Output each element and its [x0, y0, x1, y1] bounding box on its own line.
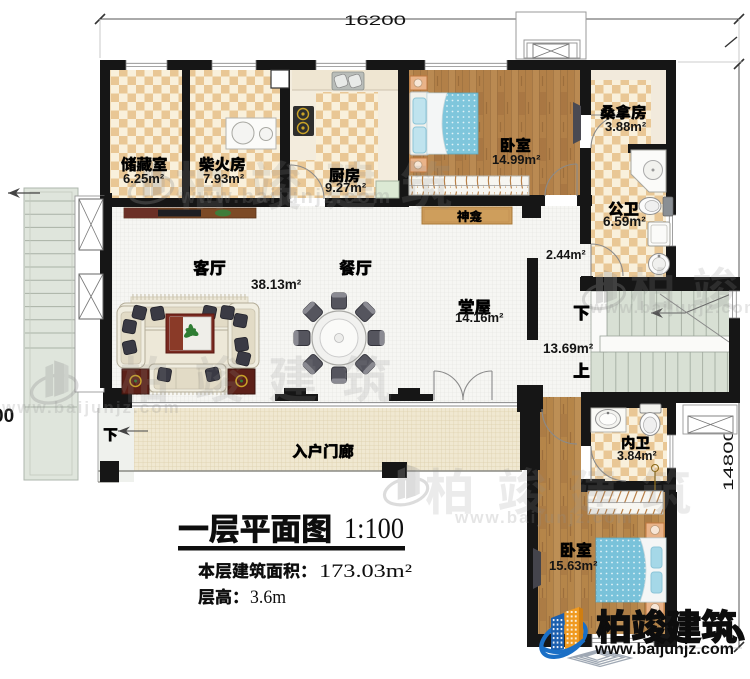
svg-text:www.baijunjz.com: www.baijunjz.com: [454, 508, 634, 527]
svg-text:14.16m²: 14.16m²: [455, 310, 504, 325]
svg-text:www.baijunjz.com: www.baijunjz.com: [1, 398, 181, 417]
svg-text:15.63m²: 15.63m²: [549, 558, 598, 573]
svg-text:173.03m²: 173.03m²: [319, 561, 412, 582]
svg-text:14800: 14800: [721, 429, 736, 491]
svg-text:13.69m²: 13.69m²: [543, 341, 594, 356]
svg-text:3.88m²: 3.88m²: [605, 119, 647, 134]
svg-text:www.baijunjz.com: www.baijunjz.com: [589, 298, 750, 317]
svg-text:3.84m²: 3.84m²: [617, 449, 657, 463]
svg-text:16200: 16200: [344, 13, 406, 28]
svg-text:14.99m²: 14.99m²: [492, 152, 541, 167]
svg-text:3.6m: 3.6m: [250, 587, 286, 608]
svg-text:9.27m²: 9.27m²: [325, 180, 367, 195]
svg-text:7.93m²: 7.93m²: [203, 171, 245, 186]
svg-text:www.baijunjz.com: www.baijunjz.com: [594, 641, 734, 658]
svg-text:2.44m²: 2.44m²: [546, 248, 586, 262]
svg-text:6.25m²: 6.25m²: [123, 171, 165, 186]
svg-text:1:100: 1:100: [344, 512, 404, 545]
svg-text:6.59m²: 6.59m²: [603, 214, 646, 229]
svg-text:38.13m²: 38.13m²: [251, 277, 302, 292]
